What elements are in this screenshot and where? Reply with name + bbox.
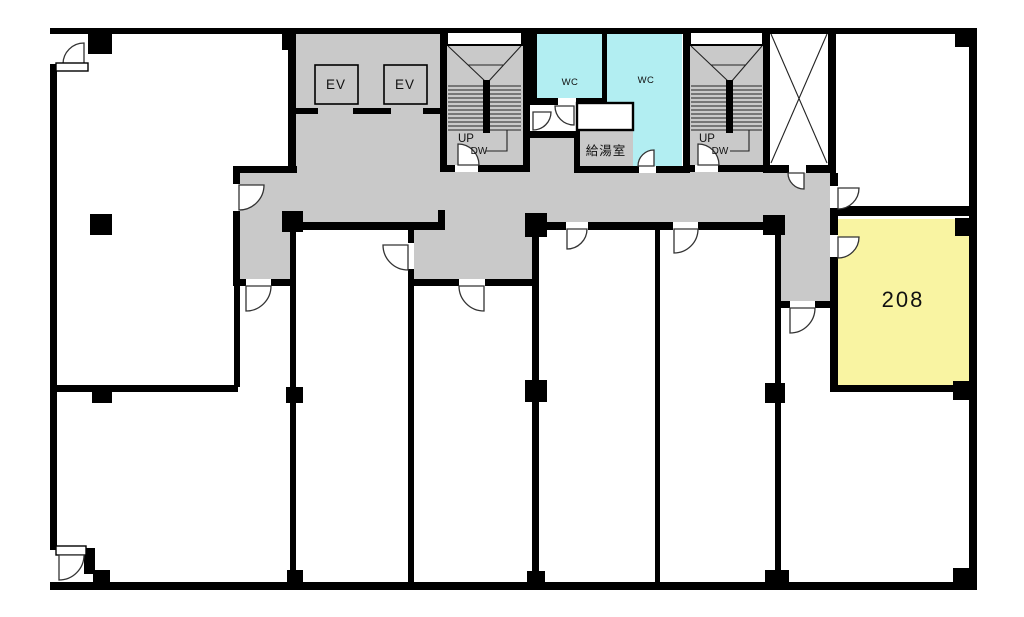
stair2-down-label: DW <box>712 146 729 157</box>
stair1-up-label: UP <box>458 133 474 145</box>
floor-plan: EV EV WC WC UP DW UP DW 給湯室 208 <box>0 0 1024 617</box>
kitchen-counter <box>577 103 633 130</box>
pillar <box>93 570 110 587</box>
free-column <box>90 214 112 235</box>
outer-wall-right <box>969 28 977 590</box>
pillar <box>92 387 112 403</box>
wc-left-label: WC <box>562 77 579 88</box>
pillar <box>525 380 547 402</box>
elevator-2-label: EV <box>395 77 415 92</box>
shaft <box>770 33 828 165</box>
stair-center-rail <box>726 80 733 133</box>
pillar <box>525 213 547 237</box>
door <box>459 286 484 311</box>
elevator-1-label: EV <box>326 77 346 92</box>
pillar <box>955 218 971 236</box>
stair-landing <box>690 32 763 45</box>
pillar <box>955 33 972 47</box>
stair2-up-label: UP <box>699 133 715 145</box>
door <box>674 229 698 253</box>
pillar <box>282 211 303 232</box>
door <box>246 286 271 311</box>
pillar <box>763 215 785 235</box>
pillar <box>765 570 789 588</box>
corridor-center-branch <box>414 225 532 280</box>
pillar <box>88 30 112 54</box>
entry-door-top-left <box>63 43 84 64</box>
entry-threshold <box>56 546 86 555</box>
pillar <box>527 571 545 587</box>
door <box>838 188 859 209</box>
corridor-kitchen-strip <box>530 138 576 172</box>
door <box>383 245 408 270</box>
pillar <box>282 33 295 50</box>
stair1-down-label: DW <box>471 146 488 157</box>
corridor-east-branch <box>781 225 830 302</box>
entry-threshold <box>56 63 88 71</box>
pillar <box>953 381 971 400</box>
pillar <box>286 387 303 403</box>
door <box>790 308 815 333</box>
pillar <box>287 570 303 587</box>
floor-plan-drawing: EV EV WC WC UP DW UP DW 給湯室 208 <box>0 0 1024 617</box>
outer-wall-bottom <box>50 582 977 590</box>
wc-left-room <box>537 33 602 98</box>
pillar <box>953 568 973 587</box>
pillar <box>765 383 785 403</box>
room-208-label: 208 <box>882 287 925 312</box>
corridor-west-branch <box>240 225 296 279</box>
kitchenette-label: 給湯室 <box>586 143 627 158</box>
stair-center-rail <box>483 80 490 133</box>
outer-wall-left <box>50 64 57 550</box>
stair-landing <box>447 32 522 45</box>
wc-right-label: WC <box>638 75 655 86</box>
door <box>567 229 587 249</box>
entry-door-bottom-left <box>59 555 84 580</box>
